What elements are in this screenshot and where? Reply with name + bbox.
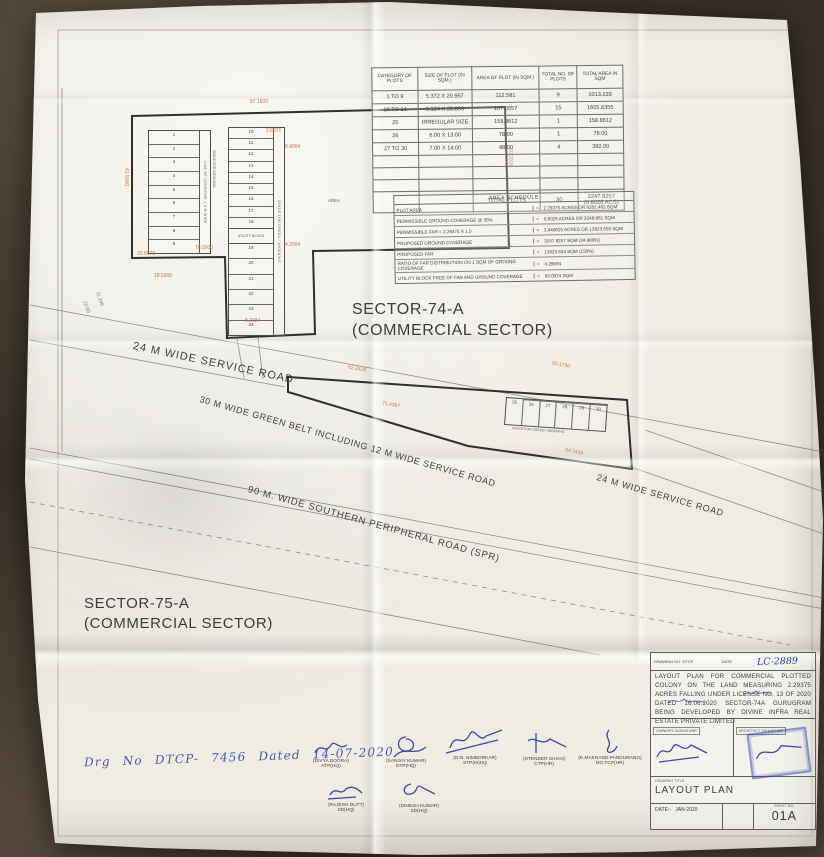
signer-title: SD(HQ) [388,809,450,814]
plot-cell: 15 [229,183,273,194]
dimension-label: 41.5000 [123,168,129,186]
fold-crease [628,0,648,660]
date-field: DATE:- JAN-2020 [651,804,723,829]
dimension-label: 8.4004 [285,144,300,150]
title-block-bottom-row: DATE:- JAN-2020 SHEET NO. 01A [651,804,815,829]
dimension-label: 87.1600 [250,99,268,105]
green-space-text: SPACE FOR GREEN / WIDENING [277,200,281,263]
road-label-spr: 90 M. WIDE SOUTHERN PERIPHERAL ROAD (SPR… [247,484,501,564]
plot-cell: 8 [149,226,199,240]
handwritten-license-number: LC-2889 [757,655,815,668]
architect-stamp [746,727,811,780]
photo-of-plan: 123456789 LINE OF CORRIDOR 1.5 M WIDE 10… [0,0,824,857]
sector-75a-subtitle: (COMMERCIAL SECTOR) [84,614,273,634]
plot-cell: 2 [149,144,199,158]
sheet-number-label: SHEET NO. [754,804,815,808]
column-header: AREA OF PLOT (IN SQM.) [471,66,539,90]
signature-scribble [394,737,426,757]
plot-cell: 13 [229,161,273,172]
plot-cell: 3 [149,157,199,171]
plot-cell: 20 [229,258,273,273]
drawing-title-label: DRAWING TITLE [655,779,811,783]
sector-74a-label: SECTOR-74-A (COMMERCIAL SECTOR) [352,300,553,342]
plot-cell: 1 [149,131,199,144]
plot-cell: 11 [229,138,273,149]
dimension-label: 64.7439 [565,447,584,456]
title-block-header-row: DRAWING NO. DTCP DATE LC-2889 [651,653,815,671]
dimension-label: 18.5000 [154,273,172,279]
sector-75a-label: SECTOR-75-A (COMMERCIAL SECTOR) [84,594,273,633]
dimension-label: 2.6071 [266,128,281,134]
plot-cell: 29 [571,403,590,430]
drawing-title-row: DRAWING TITLE LAYOUT PLAN [651,777,815,804]
signature-block: (K.MAKRAND PANDURANG) DG,TCP(HR) [576,728,644,766]
plot-cell: 22 [229,289,273,304]
dimension-label: 4.2004 [285,242,300,248]
dimension-label: 12.00 [81,300,91,314]
signer-title: ATP(HQ) [300,764,362,769]
road-label-service-right: 24 M WIDE SERVICE ROAD [596,472,725,518]
plot-cell: 25 [505,398,523,425]
plot-cell: 19 [229,244,273,258]
road-label-green-belt: 30 M WIDE GREEN BELT INCLUDING 12 M WIDE… [199,394,497,488]
dimension-label: 11.245 [94,291,104,307]
signer-title: STP(M)HQ [440,761,510,766]
signature-block: (JITENDER SIHAG) CTP(HR) [514,731,574,767]
green-belt-edge [30,448,824,598]
drawing-no-label: DRAWING NO. DTCP [651,659,722,664]
signature-block: (D.N. NIMBORKAR) STP(M)HQ [440,726,510,766]
stamp-signature-scribble [750,731,808,775]
sheet-number: 01A [754,809,815,823]
project-description: LAYOUT PLAN FOR COMMERCIAL PLOTTED COLON… [651,671,815,719]
plot-strip-cells: 123456789 [149,131,199,253]
plot-cell: 6 [149,198,199,212]
green-space-column: SPACE FOR GREEN / WIDENING [273,128,284,335]
utility-block-label: UTILITY BLOCK [229,228,273,244]
service-road-right-edge [645,430,824,492]
plot-cell: 16 [229,194,273,205]
plot-cell: 5 [149,185,199,199]
signature-scribble [446,730,502,753]
dimension-label: 63.1730 [552,360,571,369]
plot-cell: 27 [538,400,557,427]
dimension-label: 71.4387 [382,400,401,409]
area-schedule-table: AREA SCHEDULE PLOT AREA=2.29375 ACRES OR… [393,191,636,284]
date-label: DATE [722,659,757,664]
column-header: TOTAL AREA IN SQM [577,65,623,88]
owner-signature-scribble [655,737,715,767]
drawing-title: LAYOUT PLAN [655,785,811,796]
paper-sheet: 123456789 LINE OF CORRIDOR 1.5 M WIDE 10… [0,0,824,857]
service-road-right-edge2 [628,466,824,534]
pen-scribble [667,697,707,707]
sector-74a-title: SECTOR-74-A [352,300,553,321]
corridor-column: LINE OF CORRIDOR 1.5 M WIDE [199,131,210,253]
sector-74a-subtitle: (COMMERCIAL SECTOR) [352,321,553,342]
owner-signature-cell: OWNER'S SIGNATURE [651,719,733,776]
column-header: SIZE OF PLOT (IN SQM.) [418,67,472,91]
road-label-service-left: 24 M WIDE SERVICE ROAD [132,340,295,386]
corridor-text: SPACE FOR WIDENING [212,150,216,188]
dimension-label: 8.2684 [245,318,260,324]
date-value: JAN-2020 [675,807,697,813]
plot-cell: 4 [149,171,199,185]
plot-strip-cells: 101112131415161718 [229,128,273,228]
signer-title: SD(HQ) [316,808,376,813]
plot-cell: 17 [229,206,273,217]
signature-scribble [528,733,566,753]
plot-cell: 30 [588,404,607,431]
plot-cell: 26 [521,399,540,426]
signer-title: DG,TCP(HR) [576,761,644,766]
column-header: CATEGORY OF PLOTS [372,67,418,90]
plot-cell: 21 [229,274,273,289]
plot-cell: 18 [229,217,273,228]
corridor-text: LINE OF CORRIDOR 1.5 M WIDE [203,161,207,224]
signature-scribble [404,784,435,794]
plot-strip-10-24: 101112131415161718 UTILITY BLOCK 1920212… [228,127,285,336]
sector-75a-title: SECTOR-75-A [84,594,273,614]
signature-scribble [315,743,347,753]
plot-strip-1-9: 123456789 LINE OF CORRIDOR 1.5 M WIDE [148,130,211,254]
sheet-number-cell: SHEET NO. 01A [754,804,815,829]
plot-cell: 28 [554,402,573,429]
plot-cell: 12 [229,149,273,160]
signature-block: (DIVYA DOGRA) ATP(HQ) [300,737,362,769]
dimension-label: 20.6070 [137,251,155,257]
signature-block: (RAJESH DUTT) SD(HQ) [316,783,376,813]
empty-cell [723,804,754,829]
title-block: DRAWING NO. DTCP DATE LC-2889 LAYOUT PLA… [650,652,816,830]
signature-block: (DINESH KUMAR) SD(HQ) [388,780,450,814]
plot-cell: 9 [149,239,199,253]
signature-scribble [607,730,617,752]
date-field-label: DATE:- [655,807,671,813]
signer-title: DTP(HQ) [374,764,438,769]
dimension-label: 78.5000 [195,245,213,251]
plot-cell: 14 [229,172,273,183]
signature-cells: OWNER'S SIGNATURE ARCHITECT SIGNATURE [651,719,815,777]
owner-signature-label: OWNER'S SIGNATURE [653,727,700,735]
signer-title: CTP(HR) [514,762,574,767]
column-header: TOTAL NO. OF PLOTS [539,66,577,89]
area-label: AREA [328,198,340,203]
pen-scribble [743,689,773,699]
plot-cell: 7 [149,212,199,226]
signature-scribble [328,787,362,799]
signature-block: (SANJAY KUMAR) DTP(HQ) [374,733,438,769]
architect-signature-cell: ARCHITECT SIGNATURE [733,719,816,776]
dimension-label: 62.2618 [348,364,367,373]
